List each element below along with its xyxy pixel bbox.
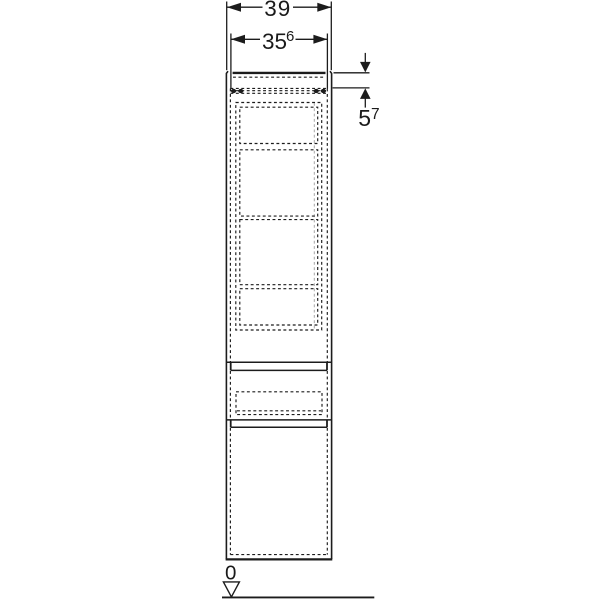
svg-text:0: 0 xyxy=(225,562,236,585)
svg-text:7: 7 xyxy=(371,106,380,123)
svg-text:39: 39 xyxy=(264,0,291,21)
svg-text:6: 6 xyxy=(286,28,294,45)
svg-text:35: 35 xyxy=(262,29,287,54)
svg-text:5: 5 xyxy=(358,105,371,131)
